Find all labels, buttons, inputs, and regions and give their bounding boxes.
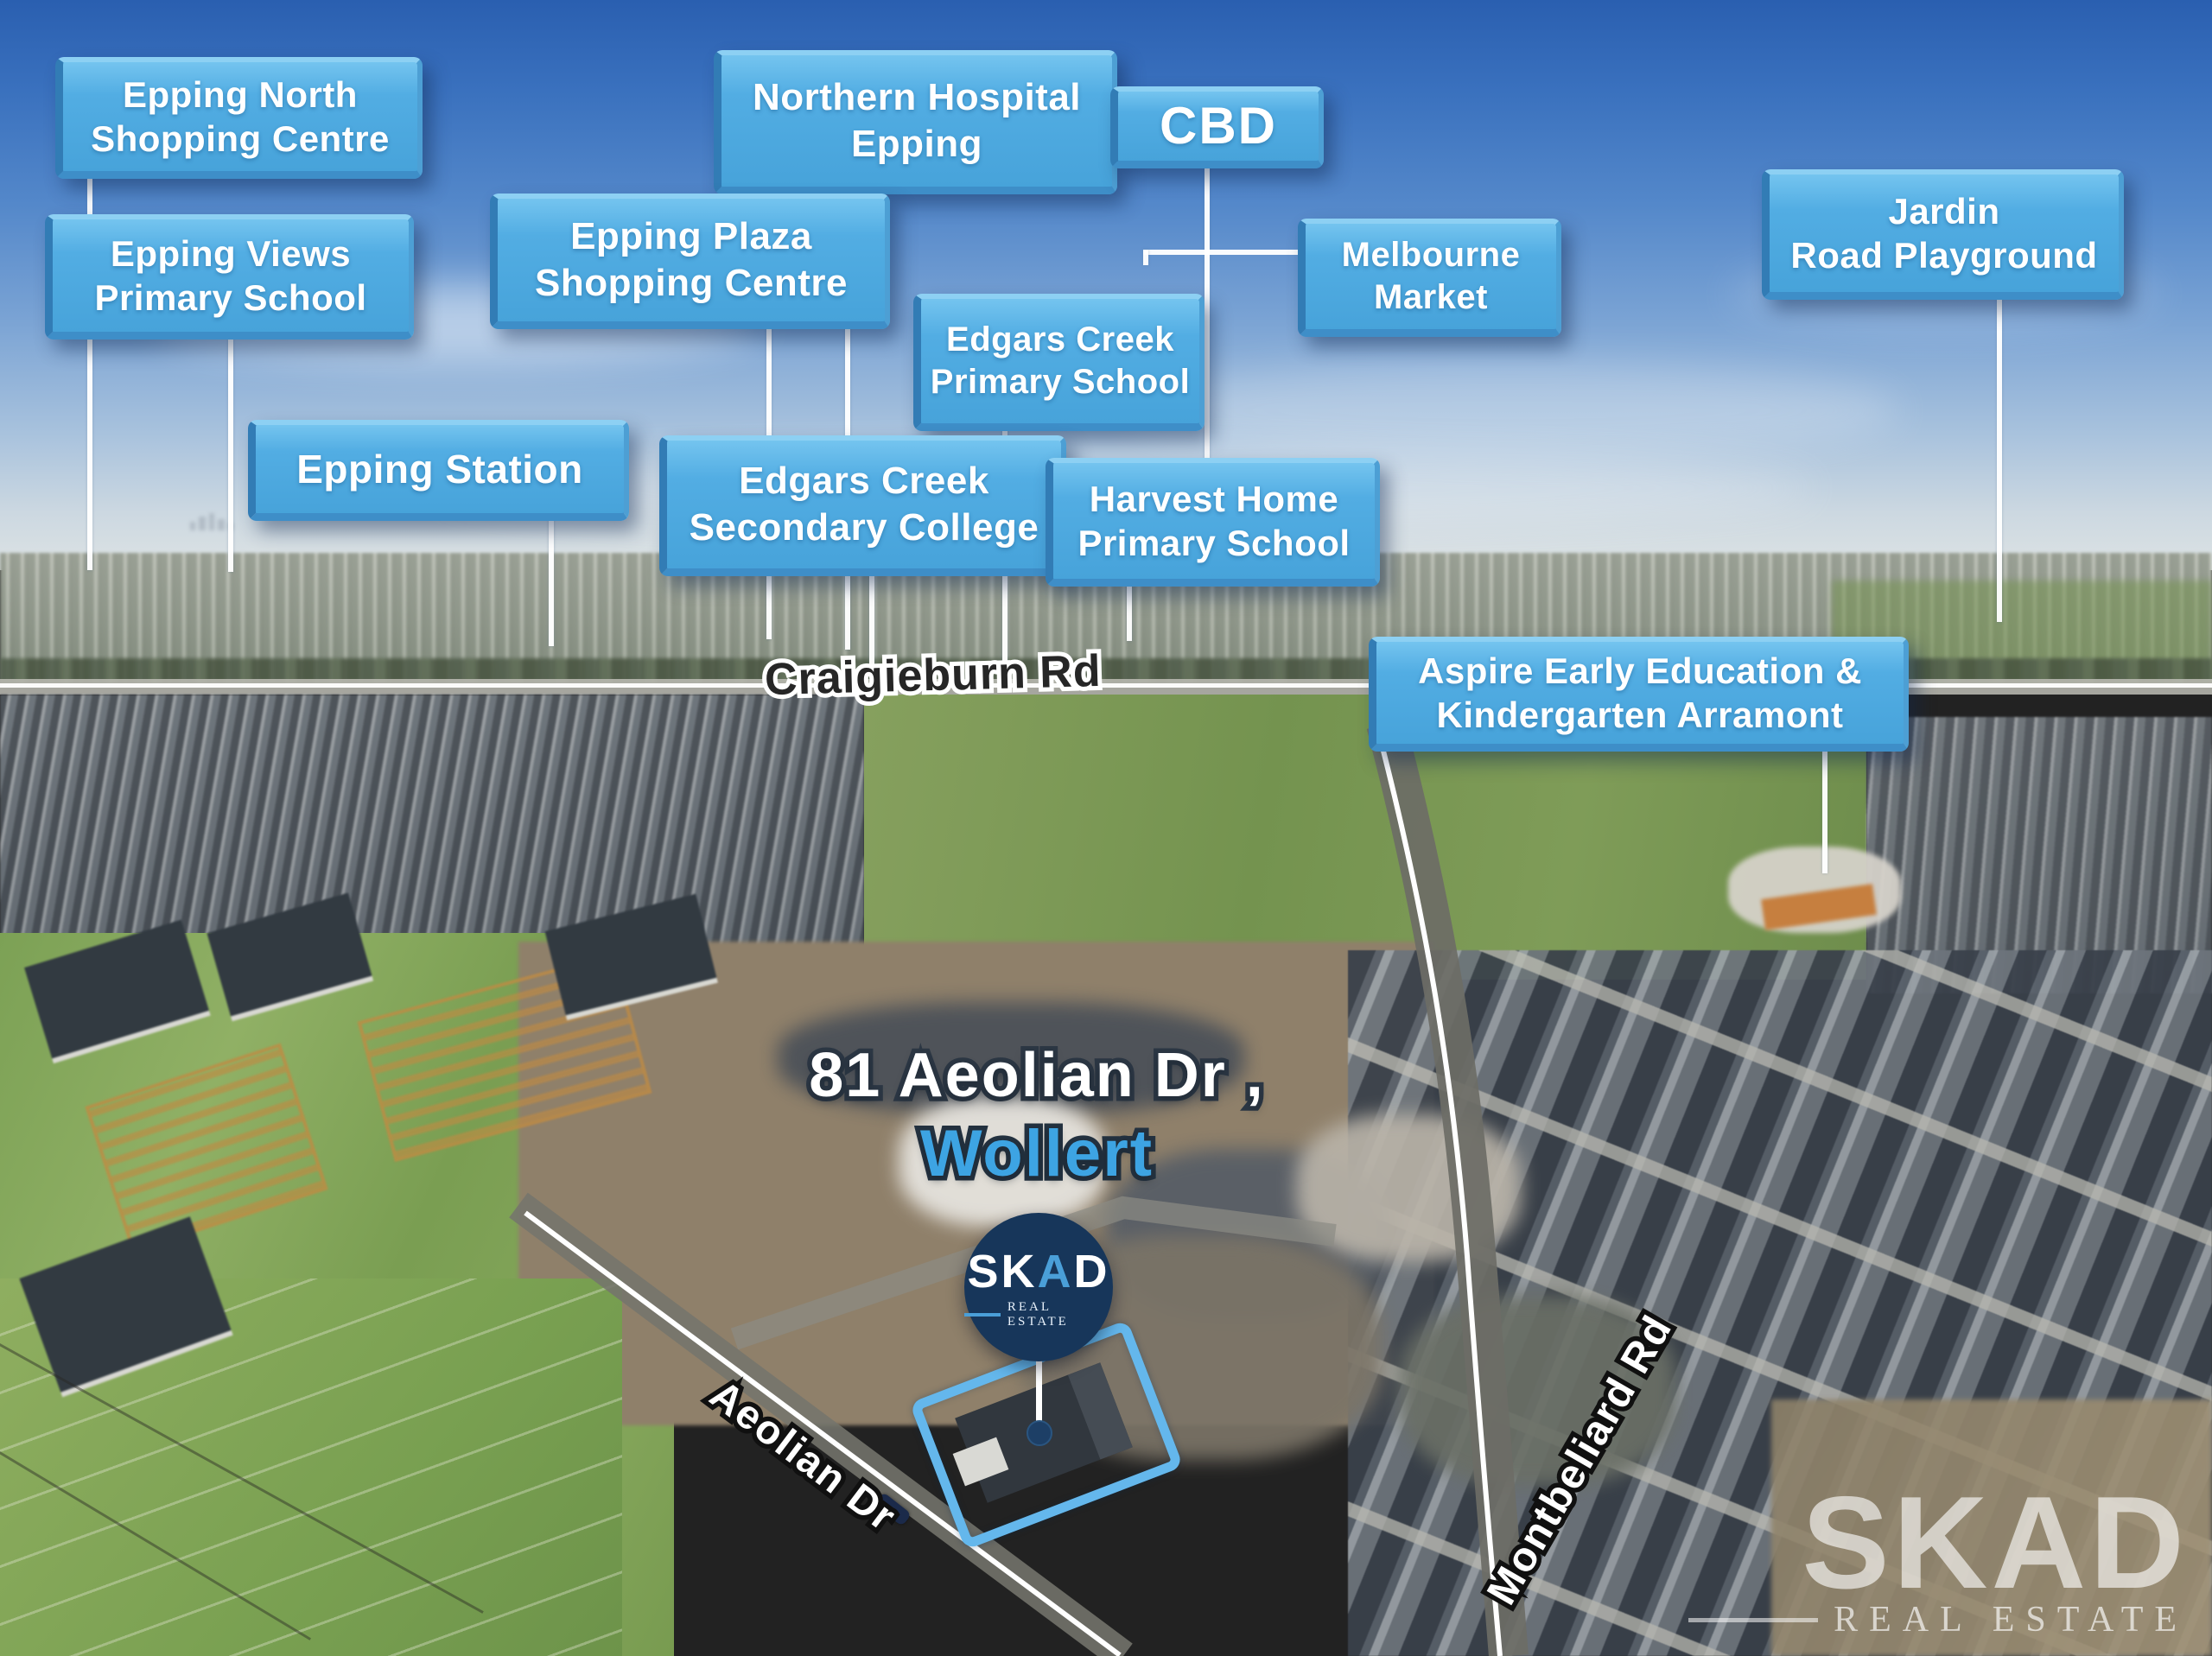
connector-tick — [1143, 250, 1148, 265]
sign-label: Edgars Creek — [739, 458, 989, 504]
logo-letter: K — [1001, 1246, 1038, 1298]
sign-label: Aspire Early Education & — [1418, 649, 1862, 693]
watermark-brand: SKAD — [1688, 1488, 2188, 1599]
property-suburb: Wollert — [652, 1116, 1421, 1191]
leader-line-aspire — [1822, 737, 1827, 873]
sign-label: CBD — [1160, 94, 1277, 157]
skad-logo-wordmark: SKAD — [967, 1245, 1109, 1298]
sign-label: Jardin — [1888, 189, 1999, 233]
sign-melbourne-market: Melbourne Market — [1298, 219, 1561, 337]
logo-letter: S — [967, 1246, 1001, 1298]
sign-epping-plaza-shopping-centre: Epping Plaza Shopping Centre — [490, 194, 890, 329]
sign-label: Melbourne — [1342, 234, 1521, 276]
sign-label: Primary School — [1077, 521, 1350, 565]
sign-label: Epping Station — [296, 445, 583, 493]
leader-line-epping-station — [549, 506, 554, 646]
skad-logo-badge: SKAD REAL ESTATE — [964, 1213, 1113, 1361]
sign-epping-station: Epping Station — [248, 420, 629, 521]
pin-stem-line — [1036, 1358, 1042, 1424]
sign-label: Secondary College — [690, 504, 1039, 551]
pin-location-dot — [1027, 1420, 1052, 1446]
sign-label: Edgars Creek — [946, 319, 1174, 361]
skad-watermark: SKAD REAL ESTATE — [1688, 1488, 2188, 1640]
skad-logo-tagline-row: REAL ESTATE — [964, 1300, 1113, 1329]
sign-label: Primary School — [94, 276, 366, 320]
sign-label: Primary School — [931, 361, 1190, 403]
leader-line-epping-views — [228, 325, 233, 572]
aerial-location-map: Epping North Shopping Centre Epping View… — [0, 0, 2212, 1656]
road-label-craigieburn: Craigieburn Rd — [764, 645, 1102, 706]
sign-cbd: CBD — [1110, 86, 1324, 168]
sign-edgars-creek-primary-school: Edgars Creek Primary School — [913, 294, 1205, 431]
sign-jardin-road-playground: Jardin Road Playground — [1762, 169, 2124, 300]
sign-edgars-creek-secondary-college: Edgars Creek Secondary College — [659, 435, 1066, 576]
sign-label: Harvest Home — [1090, 477, 1338, 521]
sign-aspire-early-education: Aspire Early Education & Kindergarten Ar… — [1369, 637, 1909, 752]
sign-label: Epping Views — [111, 232, 351, 276]
sign-label: Market — [1374, 276, 1488, 319]
sign-harvest-home-primary-school: Harvest Home Primary School — [1046, 458, 1380, 587]
connector-cbd-melbourne-market — [1143, 250, 1299, 255]
watermark-tagline-row: REAL ESTATE — [1688, 1599, 2188, 1640]
property-address: 81 Aeolian Dr , — [652, 1040, 1421, 1111]
logo-letter: D — [1074, 1246, 1110, 1298]
logo-tagline: REAL ESTATE — [1007, 1300, 1113, 1329]
sign-epping-views-primary-school: Epping Views Primary School — [45, 214, 414, 339]
sign-label: Kindergarten Arramont — [1436, 693, 1843, 737]
watermark-rule-line — [1688, 1618, 1818, 1622]
sign-northern-hospital-epping: Northern Hospital Epping — [714, 50, 1117, 194]
property-title: 81 Aeolian Dr , Wollert — [652, 1040, 1421, 1191]
sign-epping-north-shopping-centre: Epping North Shopping Centre — [55, 57, 423, 179]
sign-label: Epping North — [123, 73, 358, 117]
logo-rule-line — [964, 1313, 1001, 1317]
sign-label: Shopping Centre — [91, 117, 390, 161]
watermark-tagline: REAL ESTATE — [1834, 1599, 2188, 1640]
sign-label: Road Playground — [1790, 233, 2097, 277]
sign-label: Northern Hospital — [753, 74, 1081, 121]
logo-letter: A — [1038, 1246, 1074, 1298]
sign-label: Epping — [851, 121, 982, 168]
sign-label: Shopping Centre — [535, 260, 848, 307]
sign-label: Epping Plaza — [570, 213, 812, 260]
leader-line-jardin — [1997, 285, 2002, 622]
